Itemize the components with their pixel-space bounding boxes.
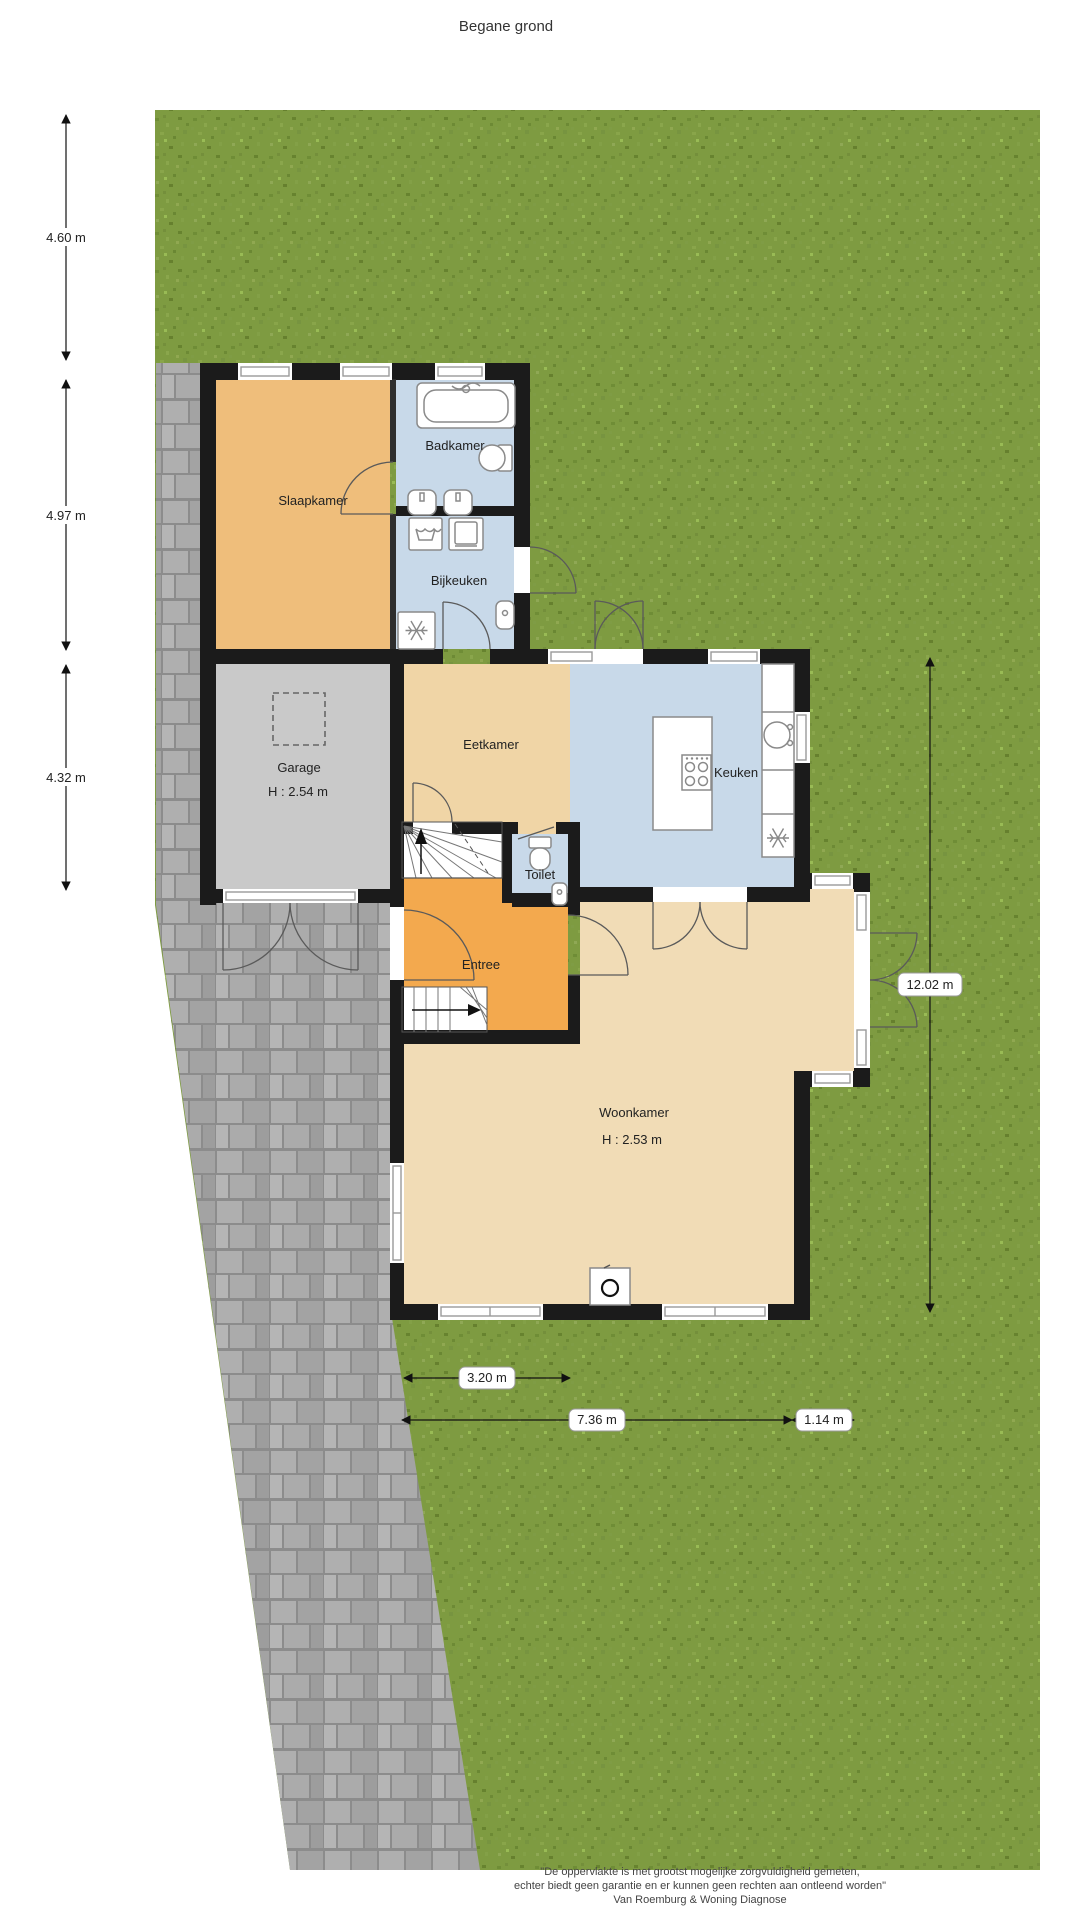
toilet-icon: [529, 837, 551, 870]
garage-door-opening: [223, 889, 358, 903]
label-toilet: Toilet: [525, 867, 556, 882]
label-entree: Entree: [462, 957, 500, 972]
label-garage: Garage: [277, 760, 320, 775]
label-garage-height: H : 2.54 m: [268, 784, 328, 799]
floorplan-page: Slaapkamer Badkamer Bijkeuken Garage H :…: [0, 0, 1080, 1920]
dim-right: 12.02 m: [907, 977, 954, 992]
dim-left-2: 4.97 m: [46, 508, 86, 523]
dimension-left: 4.60 m 4.97 m 4.32 m: [40, 115, 92, 890]
door-opening: [595, 649, 643, 664]
washing-machine-icon: [409, 518, 442, 550]
freezer-icon: [398, 612, 435, 649]
window-icon: [340, 363, 392, 380]
dim-left-1: 4.60 m: [46, 230, 86, 245]
room-woonkamer-left: [404, 1044, 580, 1304]
dim-bottom-2: 7.36 m: [577, 1412, 617, 1427]
window-icon: [548, 649, 595, 664]
stove-icon: [682, 755, 711, 790]
dryer-icon: [449, 518, 483, 550]
window-icon: [854, 1027, 870, 1068]
window-icon: [854, 892, 870, 933]
room-woonkamer-bay: [794, 889, 854, 1071]
door-opening: [514, 547, 530, 593]
window-icon: [812, 1071, 853, 1087]
label-keuken: Keuken: [714, 765, 758, 780]
window-icon: [812, 873, 853, 889]
door-opening: [653, 887, 747, 902]
window-icon: [662, 1304, 768, 1320]
label-eetkamer: Eetkamer: [463, 737, 519, 752]
footer-line-2: echter biedt geen garantie en er kunnen …: [514, 1880, 886, 1892]
utility-sink-icon: [496, 601, 514, 629]
window-icon: [708, 649, 760, 664]
label-woonkamer: Woonkamer: [599, 1105, 670, 1120]
label-bijkeuken: Bijkeuken: [431, 573, 487, 588]
door-opening: [854, 933, 870, 1027]
page-title: Begane grond: [459, 18, 553, 35]
footer-line-3: Van Roemburg & Woning Diagnose: [613, 1894, 786, 1906]
label-woonkamer-height: H : 2.53 m: [602, 1132, 662, 1147]
bathtub-icon: [417, 383, 515, 428]
label-slaapkamer: Slaapkamer: [278, 493, 348, 508]
fireplace-icon: [590, 1265, 630, 1305]
kitchen-sink-icon: [764, 722, 793, 748]
front-door-opening: [390, 907, 404, 980]
kitchen-counter: [762, 664, 794, 857]
toilet-sink-icon: [552, 883, 567, 905]
room-woonkamer: [580, 902, 794, 1304]
window-icon: [390, 1163, 404, 1263]
label-badkamer: Badkamer: [425, 438, 485, 453]
dim-bottom-3: 1.14 m: [804, 1412, 844, 1427]
window-icon: [438, 1304, 543, 1320]
window-icon: [794, 712, 810, 763]
footer-line-1: "De oppervlakte is met grootst mogelijke…: [540, 1866, 859, 1878]
floor-plan-svg: Slaapkamer Badkamer Bijkeuken Garage H :…: [0, 0, 1080, 1920]
dim-left-3: 4.32 m: [46, 770, 86, 785]
dim-bottom-1: 3.20 m: [467, 1370, 507, 1385]
window-icon: [238, 363, 292, 380]
room-garage: [216, 663, 390, 889]
window-icon: [435, 363, 485, 380]
